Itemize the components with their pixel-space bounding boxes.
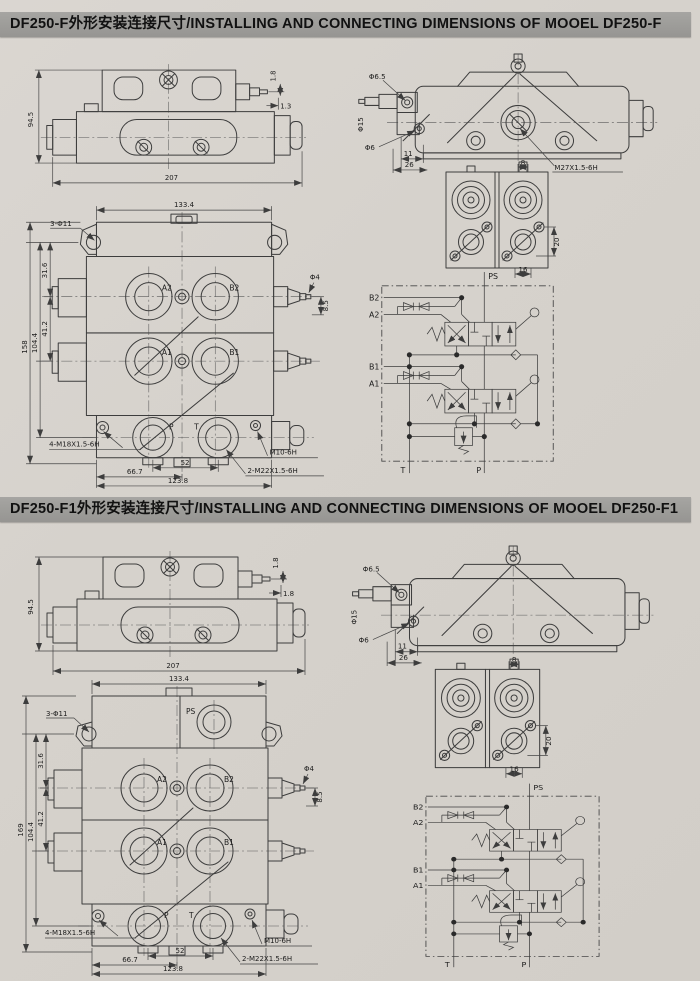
port-face-outline bbox=[435, 659, 539, 767]
dim-1238: 123.8 bbox=[163, 965, 183, 973]
dim-8: 8 bbox=[512, 655, 517, 664]
dim-height-total: 169 bbox=[17, 823, 25, 836]
dim-width: 133.4 bbox=[169, 675, 190, 683]
port-label-p: P bbox=[169, 423, 174, 432]
dim-height: 94.5 bbox=[27, 599, 35, 615]
label-a2: A2 bbox=[369, 310, 379, 319]
schematic-circuit bbox=[384, 272, 539, 473]
df250f-rear-view-drawing: Φ6.5 Φ15 Φ6 11 26 M27X1.5-6H bbox=[356, 52, 660, 175]
port-label-a2: A2 bbox=[162, 284, 172, 293]
dim-667: 66.7 bbox=[127, 467, 143, 476]
dim-11: 11 bbox=[398, 642, 407, 651]
label-t: T bbox=[444, 961, 450, 970]
dim-1238: 123.8 bbox=[168, 476, 188, 485]
section-header-df250-f1: DF250-F1外形安装连接尺寸/INSTALLING AND CONNECTI… bbox=[0, 497, 691, 522]
df250f1-hydraulic-schematic: PS B2 A2 B1 A1 T P bbox=[412, 780, 616, 978]
label-p: P bbox=[521, 961, 526, 970]
section-header-df250-f: DF250-F外形安装连接尺寸/INSTALLING AND CONNECTIN… bbox=[0, 12, 691, 37]
dim-tip-len: 1.8 bbox=[283, 590, 294, 598]
port-face-outline bbox=[446, 162, 548, 268]
thread-mount-label: 4-M18X1.5-6H bbox=[45, 929, 95, 937]
label-p: P bbox=[476, 466, 481, 475]
port-label-a1: A1 bbox=[157, 838, 167, 847]
label-ps: PS bbox=[533, 783, 543, 792]
df250f-side-view-drawing: 94.5 207 1.8 1.3 bbox=[25, 50, 307, 195]
dim-tip-len: 8.5 bbox=[321, 300, 330, 311]
dim-8: 8 bbox=[521, 159, 525, 167]
thread-pt-label: 2-M22X1.5-6H bbox=[247, 466, 297, 475]
thread-gauge-label: M10-6H bbox=[264, 937, 291, 945]
port-label-t: T bbox=[193, 423, 199, 432]
dim-26: 26 bbox=[405, 160, 414, 169]
dim-26: 26 bbox=[399, 653, 409, 662]
dim-hole-side: Φ15 bbox=[356, 117, 365, 132]
valve-body-outline bbox=[353, 546, 650, 652]
dim-length: 207 bbox=[166, 662, 179, 670]
dim-tip-dia: Φ4 bbox=[310, 273, 321, 282]
dim-height-total: 158 bbox=[20, 340, 29, 353]
label-ps: PS bbox=[488, 272, 498, 281]
port-label-b2: B2 bbox=[229, 284, 239, 293]
dim-tip-len: 1.3 bbox=[280, 103, 291, 111]
label-b1: B1 bbox=[369, 363, 379, 372]
df250f-front-view-drawing: 133.4 3-Φ11 A2 B2 A1 B1 P T 158 104.4 41… bbox=[22, 196, 334, 490]
dim-width: 133.4 bbox=[174, 200, 195, 209]
valve-body-outline bbox=[52, 214, 311, 467]
port-label-t: T bbox=[188, 911, 194, 920]
dim-hole-bottom: Φ6 bbox=[365, 143, 376, 152]
port-label-b1: B1 bbox=[224, 838, 234, 847]
df250f1-front-view-drawing: 133.4 3-Φ11 PS A2 B2 A1 B1 P T 169 104.4… bbox=[16, 670, 330, 978]
dim-hole-side: Φ15 bbox=[350, 610, 359, 625]
mount-holes-label: 3-Φ11 bbox=[50, 219, 72, 228]
mount-holes-label: 3-Φ11 bbox=[46, 710, 67, 718]
thread-gauge-label: M10-6H bbox=[270, 448, 297, 457]
label-t: T bbox=[400, 466, 406, 475]
catalog-page: DF250-F外形安装连接尺寸/INSTALLING AND CONNECTIN… bbox=[0, 0, 700, 981]
dim-20: 20 bbox=[553, 238, 561, 247]
dim-top-gap: 31.6 bbox=[37, 753, 45, 769]
valve-body-outline bbox=[359, 54, 653, 159]
dim-tip-dia: 1.8 bbox=[272, 557, 280, 568]
df250f-port-view-drawing: 8 20 16 bbox=[432, 160, 562, 280]
dim-height-mid: 104.4 bbox=[27, 821, 35, 842]
dim-11: 11 bbox=[404, 149, 413, 158]
dim-hole-top: Φ6.5 bbox=[363, 564, 380, 573]
dim-52: 52 bbox=[181, 458, 190, 467]
dim-hole-top: Φ6.5 bbox=[369, 72, 386, 81]
valve-body-outline bbox=[47, 557, 305, 651]
port-label-b2: B2 bbox=[224, 775, 234, 784]
dim-52: 52 bbox=[176, 947, 185, 955]
dim-667: 66.7 bbox=[122, 956, 138, 964]
dim-tip-dia: 1.8 bbox=[269, 71, 277, 82]
thread-mount-label: 4-M18X1.5-6H bbox=[49, 440, 99, 449]
label-a1: A1 bbox=[413, 881, 424, 890]
dim-hole-bottom: Φ6 bbox=[359, 636, 370, 645]
label-b1: B1 bbox=[413, 866, 424, 875]
dim-top-gap: 31.6 bbox=[40, 262, 49, 278]
dim-row-gap: 41.2 bbox=[37, 811, 45, 827]
dim-row-gap: 41.2 bbox=[40, 321, 49, 337]
valve-body-outline bbox=[47, 70, 302, 163]
label-b2: B2 bbox=[413, 803, 424, 812]
df250f1-port-view-drawing: 8 20 16 bbox=[421, 657, 554, 780]
df250f-hydraulic-schematic: PS B2 A2 B1 A1 T P bbox=[368, 268, 570, 485]
junction-dots bbox=[407, 295, 540, 439]
port-label-a1: A1 bbox=[162, 348, 172, 357]
dim-tip-dia: Φ4 bbox=[304, 765, 315, 773]
dim-height-mid: 104.4 bbox=[30, 332, 39, 353]
centerlines bbox=[387, 54, 657, 165]
junction-dots bbox=[451, 805, 586, 937]
label-a1: A1 bbox=[369, 379, 379, 388]
port-label-ps: PS bbox=[186, 707, 196, 716]
dim-20: 20 bbox=[544, 736, 553, 746]
schematic-circuit bbox=[428, 784, 585, 968]
valve-body-outline bbox=[48, 688, 305, 955]
dim-height: 94.5 bbox=[27, 112, 35, 127]
df250f1-side-view-drawing: 94.5 207 1.8 1.8 bbox=[25, 536, 310, 684]
centerlines bbox=[381, 546, 653, 658]
dim-length: 207 bbox=[165, 174, 178, 182]
port-label-a2: A2 bbox=[157, 775, 167, 784]
df250f1-rear-view-drawing: Φ6.5 Φ15 Φ6 11 26 bbox=[350, 544, 656, 668]
port-label-p: P bbox=[164, 911, 169, 920]
dim-tip-len: 8.5 bbox=[316, 791, 324, 802]
label-b2: B2 bbox=[369, 294, 379, 303]
dim-16: 16 bbox=[510, 765, 520, 774]
port-label-b1: B1 bbox=[229, 348, 239, 357]
label-a2: A2 bbox=[413, 818, 424, 827]
thread-pt-label: 2-M22X1.5-6H bbox=[242, 955, 292, 963]
